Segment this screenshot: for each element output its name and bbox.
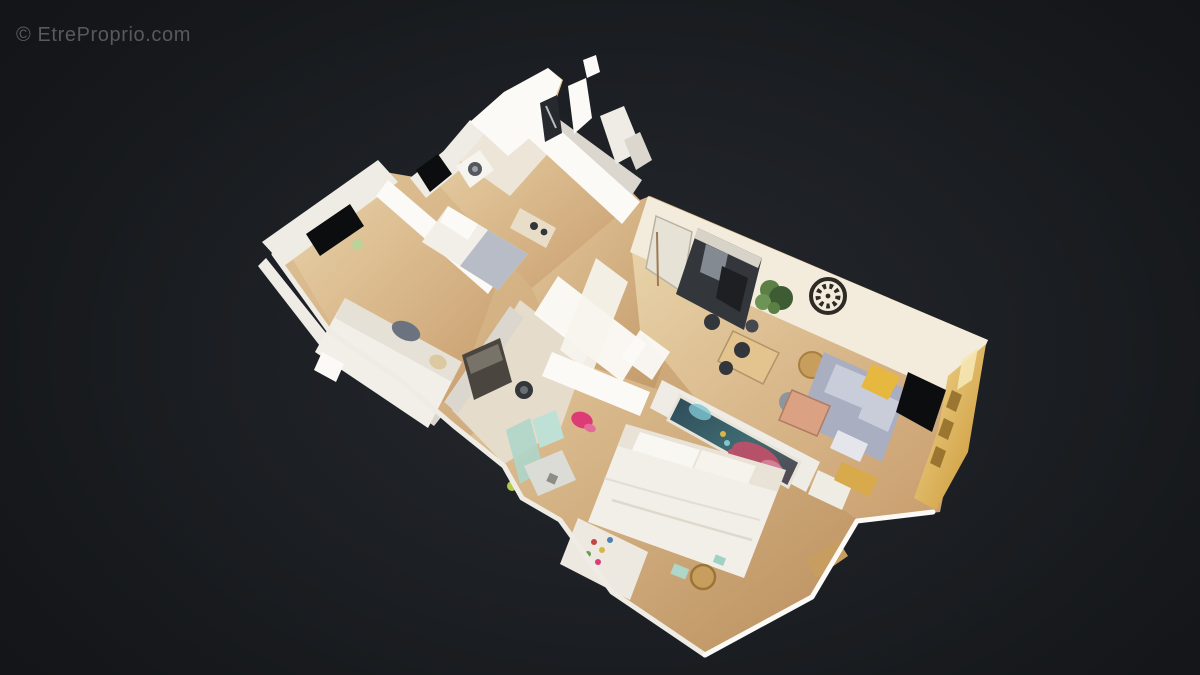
dining-chair xyxy=(746,320,759,333)
listing-photo-stage: © EtreProprio.com xyxy=(0,0,1200,675)
bedroom-stool xyxy=(691,565,715,589)
dining-chair xyxy=(734,342,750,358)
dining-chair xyxy=(719,361,733,375)
dining-chair xyxy=(704,314,720,330)
watermark: © EtreProprio.com xyxy=(16,24,191,47)
apartment-3d-model xyxy=(0,0,1200,675)
wall-clock xyxy=(811,279,845,313)
